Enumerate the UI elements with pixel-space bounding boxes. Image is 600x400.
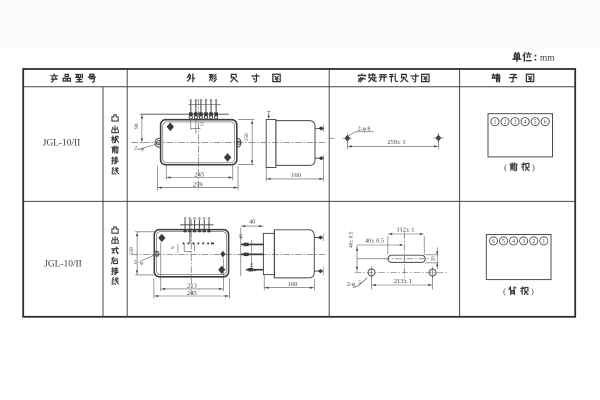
svg-text:6: 6 [544,120,547,126]
svg-text:150: 150 [129,247,135,255]
svg-text:245: 245 [187,290,197,297]
svg-text:3: 3 [522,239,525,245]
svg-text:4: 4 [512,239,515,245]
svg-text:JGL-10/II: JGL-10/II [44,260,82,270]
svg-text:2-: 2- [134,146,139,152]
svg-text:112± 1: 112± 1 [397,227,415,234]
svg-text:2: 2 [532,239,535,245]
svg-text:1: 1 [542,239,545,245]
svg-text:4: 4 [524,120,527,126]
svg-text:150: 150 [244,133,250,141]
svg-text:20: 20 [432,256,437,262]
svg-text:5: 5 [534,120,537,126]
svg-text:40± 0.5: 40± 0.5 [349,231,355,248]
svg-text:): ) [532,163,535,172]
svg-text:2: 2 [504,120,507,126]
svg-text:90: 90 [134,123,140,129]
svg-text:2-: 2- [134,259,139,265]
svg-text:): ) [531,287,534,296]
svg-text:213± 1: 213± 1 [394,278,412,285]
svg-text:160: 160 [291,172,301,179]
svg-text:mm: mm [540,54,555,64]
svg-text:40: 40 [239,234,244,240]
svg-text:259: 259 [193,181,203,188]
svg-text:40± 0.5: 40± 0.5 [365,238,384,245]
svg-text:1: 1 [493,120,496,126]
svg-text:13: 13 [199,121,204,126]
svg-text:JGL-10/II: JGL-10/II [43,139,81,149]
svg-text:5: 5 [502,239,505,245]
svg-text:40: 40 [249,219,255,226]
svg-text:(: ( [504,163,507,172]
svg-text:(: ( [503,287,506,296]
svg-text:3: 3 [514,120,517,126]
svg-text:6: 6 [492,239,495,245]
svg-text:259± 1: 259± 1 [387,139,405,146]
svg-text:213: 213 [187,283,197,290]
svg-text:16: 16 [249,262,254,267]
svg-text:245: 245 [194,171,204,178]
svg-text:160: 160 [288,281,298,288]
